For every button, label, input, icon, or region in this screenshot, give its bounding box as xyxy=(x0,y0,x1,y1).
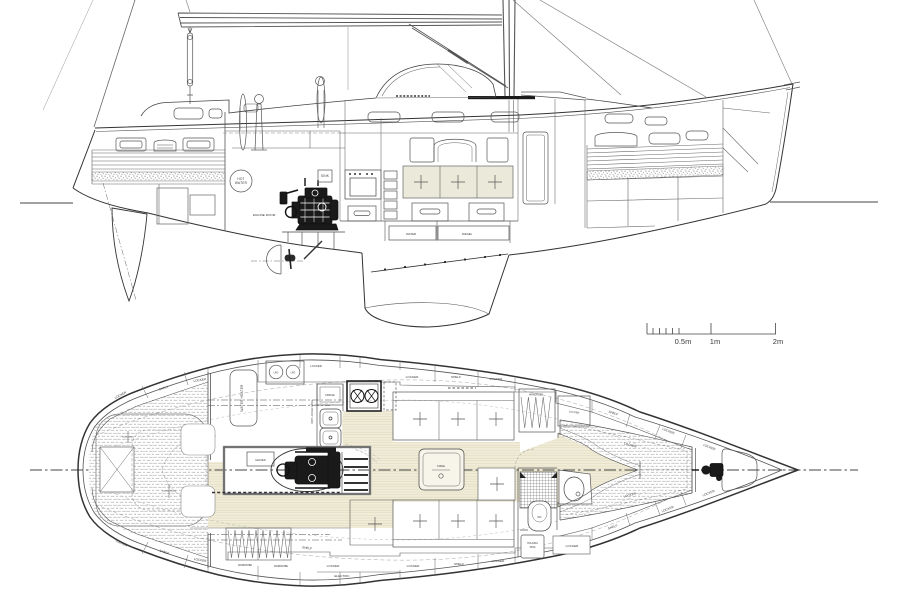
svg-text:LOCKER: LOCKER xyxy=(327,564,340,568)
svg-text:TANK: TANK xyxy=(529,546,536,549)
svg-text:LPG: LPG xyxy=(274,372,279,375)
svg-text:SHELF: SHELF xyxy=(454,562,464,566)
svg-text:LOCKER: LOCKER xyxy=(566,544,579,548)
svg-text:LOCKER: LOCKER xyxy=(407,564,420,568)
svg-text:ELECTRIC: ELECTRIC xyxy=(334,574,350,578)
svg-text:SHELF: SHELF xyxy=(451,375,461,379)
svg-text:LOCKER: LOCKER xyxy=(490,377,503,381)
svg-text:DIESEL: DIESEL xyxy=(462,232,473,236)
svg-text:LOCKER: LOCKER xyxy=(406,375,419,379)
svg-text:2m: 2m xyxy=(773,337,783,346)
svg-text:LOCKER: LOCKER xyxy=(310,364,322,368)
svg-text:WARDROBE: WARDROBE xyxy=(274,565,288,568)
svg-text:TABLE: TABLE xyxy=(437,464,445,468)
svg-text:WATER: WATER xyxy=(235,181,248,185)
svg-text:SINK: SINK xyxy=(321,174,330,178)
svg-text:LPG: LPG xyxy=(291,372,296,375)
svg-text:WATER HEATER: WATER HEATER xyxy=(240,384,244,412)
svg-text:WATER: WATER xyxy=(406,232,416,236)
svg-text:ENGINE ROOM: ENGINE ROOM xyxy=(253,213,276,217)
svg-text:FRIDGE: FRIDGE xyxy=(325,394,335,397)
svg-text:WARDROBE: WARDROBE xyxy=(238,564,252,567)
svg-text:HEATER: HEATER xyxy=(255,458,265,462)
svg-text:WC: WC xyxy=(537,515,541,519)
svg-text:DISH LOCKER OVER: DISH LOCKER OVER xyxy=(311,400,314,424)
svg-text:WARDROBE: WARDROBE xyxy=(529,394,543,397)
svg-text:1m: 1m xyxy=(710,337,720,346)
svg-text:LOCKER: LOCKER xyxy=(492,559,505,563)
svg-text:0.5m: 0.5m xyxy=(675,337,692,346)
svg-text:HOLDING: HOLDING xyxy=(527,542,538,545)
